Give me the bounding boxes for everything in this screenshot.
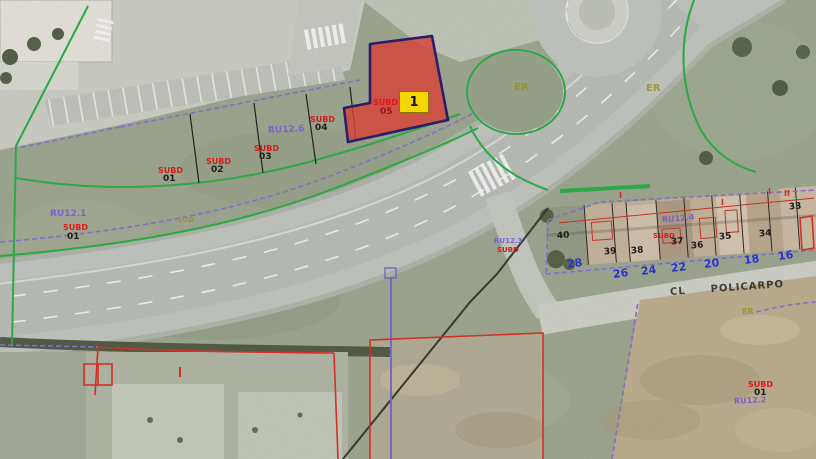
house-number-35: 35 bbox=[719, 232, 732, 242]
subd-label-island: SUBD bbox=[497, 247, 519, 254]
parcel-number-05: 05 bbox=[380, 108, 393, 117]
zone-label-er-2: ER bbox=[646, 84, 661, 94]
house-number-38: 38 bbox=[631, 246, 644, 256]
zone-label-ru126: RU12.6 bbox=[268, 125, 305, 136]
house-number-33: 33 bbox=[789, 202, 802, 212]
street-number-24: 24 bbox=[640, 264, 657, 277]
house-number-36: 36 bbox=[691, 241, 704, 251]
house-number-37: 37 bbox=[671, 237, 684, 247]
roman-numeral-4: II bbox=[784, 190, 790, 198]
roman-numeral-3: I bbox=[768, 188, 771, 196]
street-number-22: 22 bbox=[670, 261, 687, 274]
subd-label-left: SUBD bbox=[63, 224, 88, 232]
parcel-number-03: 03 bbox=[259, 153, 272, 162]
parcel-number-04: 04 bbox=[315, 124, 328, 133]
zone-label-sud: SUD bbox=[177, 217, 194, 224]
house-number-39: 39 bbox=[604, 247, 617, 257]
street-prefix: CL bbox=[670, 286, 686, 298]
zone-label-er-1: ER bbox=[514, 83, 529, 93]
street-number-28: 28 bbox=[566, 257, 583, 270]
zone-label-ru122: RU12.2 bbox=[734, 396, 767, 406]
street-number-20: 20 bbox=[703, 257, 720, 270]
selected-parcel-badge[interactable]: 1 bbox=[399, 91, 429, 113]
street-number-18: 18 bbox=[743, 253, 760, 266]
parcel-number-01: 01 bbox=[163, 175, 176, 184]
street-number-16: 16 bbox=[777, 249, 794, 262]
parcel-number-02: 02 bbox=[211, 166, 224, 175]
subd-label-05: SUBD bbox=[373, 99, 398, 107]
street-number-26: 26 bbox=[612, 267, 629, 280]
zone-label-ru123: RU12.3 bbox=[494, 238, 522, 245]
parcel-number-left: 01 bbox=[67, 233, 80, 242]
house-number-40: 40 bbox=[557, 231, 570, 241]
zone-label-ru121: RU12.1 bbox=[50, 210, 86, 219]
roman-numeral-1: I bbox=[619, 192, 622, 200]
map-canvas[interactable]: RU12.1 SUBD 01 SUBD 01 SUBD 02 SUBD 03 S… bbox=[0, 0, 816, 459]
roman-numeral-2: I bbox=[721, 199, 724, 207]
house-number-34: 34 bbox=[759, 229, 772, 239]
zone-label-er-3: ER bbox=[742, 308, 754, 316]
aerial-basemap bbox=[0, 0, 816, 459]
